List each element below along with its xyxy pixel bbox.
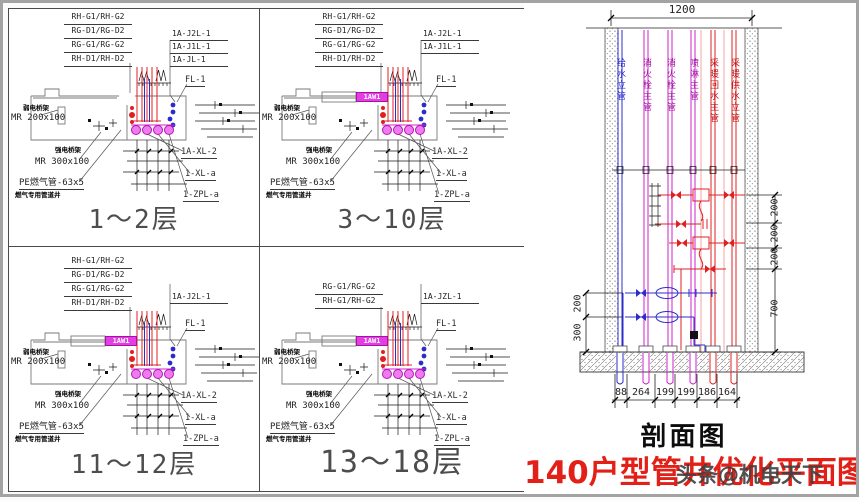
duct-tag: 1AW1 xyxy=(356,336,388,346)
floor-drain-label: FL-1 xyxy=(185,75,205,87)
dimension-label: 264 xyxy=(628,387,654,398)
duct-tag: 1AW1 xyxy=(356,92,388,102)
stack-label: RH-D1/RH-D2 xyxy=(315,53,383,67)
dimension-label: 200 xyxy=(770,242,781,272)
outlet-label: 1-XL-a xyxy=(185,169,216,181)
riser-label-stack: 1A-J2L-1 xyxy=(170,291,228,304)
floor-drain-label: FL-1 xyxy=(185,319,205,331)
stack-label: RH-G1/RH-G2 xyxy=(315,11,383,25)
riser-label-stack: 1A-J2L-1 1A-J1L-1 xyxy=(421,28,479,54)
stack-label: RG-D1/RG-D2 xyxy=(64,269,132,283)
riser-label-vertical: 消火栓主管 xyxy=(663,58,677,113)
dimension-label: 300 xyxy=(573,318,584,348)
dimension-label: 164 xyxy=(714,387,740,398)
outlet-label: 1-XL-a xyxy=(185,413,216,425)
riser-label: 1A-JL-1 xyxy=(170,54,228,67)
stack-label: RG-G1/RG-G2 xyxy=(315,39,383,53)
riser-label: 1A-J2L-1 xyxy=(421,28,479,41)
stack-label: RG-G1/RG-G2 xyxy=(315,281,383,295)
outlet-label: 1A-XL-2 xyxy=(181,391,217,403)
pipe-label-stack: RG-G1/RG-G2 RH-G1/RH-G2 xyxy=(315,281,383,309)
cable-tray-label: MR 200x100 xyxy=(11,113,65,123)
tray-note: 强电桥架 xyxy=(55,391,81,398)
gas-pipe-label: PE燃气管-63x5 xyxy=(19,422,84,434)
riser-label-vertical: 喷淋主管 xyxy=(686,58,700,102)
tray-note: 弱电桥架 xyxy=(23,105,49,112)
dimension-label: 700 xyxy=(770,294,781,324)
floor-range-title: 11～12层 xyxy=(9,444,259,481)
riser-label-vertical: 消火栓主管 xyxy=(639,58,653,113)
section-view-panel: 1200 给水立管 消火栓主管 消火栓主管 喷淋主管 采暖回水主管 采暖供水立管… xyxy=(524,0,859,497)
quadrant-floor-11-12: RH-G1/RH-G2 RG-D1/RG-D2 RG-G1/RG-G2 RH-D… xyxy=(9,247,259,491)
tray-note: 强电桥架 xyxy=(306,391,332,398)
stack-label: RH-D1/RH-D2 xyxy=(64,53,132,67)
tray-note: 弱电桥架 xyxy=(23,349,49,356)
riser-label-vertical: 给水立管 xyxy=(613,58,627,102)
floor-range-title: 3～10层 xyxy=(260,199,524,236)
riser-label-vertical: 采暖回水主管 xyxy=(706,58,720,124)
outlet-label: 1A-XL-2 xyxy=(432,391,468,403)
cable-tray-label: MR 300x100 xyxy=(286,401,340,411)
cable-tray-label: MR 200x100 xyxy=(11,357,65,367)
riser-label: 1A-J1L-1 xyxy=(170,41,228,54)
gas-pipe-label: PE燃气管-63x5 xyxy=(270,422,335,434)
outlet-label: 1-XL-a xyxy=(436,169,467,181)
stack-label: RG-G1/RG-G2 xyxy=(64,39,132,53)
quadrant-floor-13-18: RG-G1/RG-G2 RH-G1/RH-G2 1A-JZL-1 1AW1 FL… xyxy=(260,247,524,491)
width-dimension: 1200 xyxy=(654,4,710,15)
watermark: 头条@机电天下 xyxy=(676,459,823,489)
stack-label: RG-D1/RG-D2 xyxy=(315,25,383,39)
floor-range-title: 1～2层 xyxy=(9,199,259,236)
riser-label: 1A-J2L-1 xyxy=(170,291,228,304)
tray-note: 弱电桥架 xyxy=(274,105,300,112)
cable-tray-label: MR 200x100 xyxy=(262,113,316,123)
gas-shaft-note: 燃气专用管道井 xyxy=(15,192,61,199)
floor-range-title: 13～18层 xyxy=(260,437,524,481)
riser-label-stack: 1A-JZL-1 xyxy=(421,291,479,304)
floor-drain-label: FL-1 xyxy=(436,75,456,87)
duct-tag: 1AW1 xyxy=(105,336,137,346)
riser-label-vertical: 采暖供水立管 xyxy=(727,58,741,124)
gas-pipe-label: PE燃气管-63x5 xyxy=(270,178,335,190)
stack-label: RH-G1/RH-G2 xyxy=(315,295,383,309)
quadrant-floor-1-2: RH-G1/RH-G2 RG-D1/RG-D2 RG-G1/RG-G2 RH-D… xyxy=(9,9,259,246)
outlet-label: 1A-XL-2 xyxy=(181,147,217,159)
riser-label: 1A-J2L-1 xyxy=(170,28,228,41)
stack-label: RG-D1/RG-D2 xyxy=(64,25,132,39)
pipe-label-stack: RH-G1/RH-G2 RG-D1/RG-D2 RG-G1/RG-G2 RH-D… xyxy=(315,11,383,67)
floor-plan-grid: RH-G1/RH-G2 RG-D1/RG-D2 RG-G1/RG-G2 RH-D… xyxy=(8,8,525,492)
stack-label: RH-G1/RH-G2 xyxy=(64,255,132,269)
outlet-label: 1-XL-a xyxy=(436,413,467,425)
tray-note: 强电桥架 xyxy=(306,147,332,154)
cable-tray-label: MR 300x100 xyxy=(35,401,89,411)
riser-label: 1A-JZL-1 xyxy=(421,291,479,304)
riser-label-stack: 1A-J2L-1 1A-J1L-1 1A-JL-1 xyxy=(170,28,228,67)
pipe-label-stack: RH-G1/RH-G2 RG-D1/RG-D2 RG-G1/RG-G2 RH-D… xyxy=(64,255,132,311)
gas-shaft-note: 燃气专用管道井 xyxy=(266,192,312,199)
cable-tray-label: MR 200x100 xyxy=(262,357,316,367)
pipe-label-stack: RH-G1/RH-G2 RG-D1/RG-D2 RG-G1/RG-G2 RH-D… xyxy=(64,11,132,67)
dimension-label: 200 xyxy=(573,289,584,319)
floor-drain-label: FL-1 xyxy=(436,319,456,331)
tray-note: 弱电桥架 xyxy=(274,349,300,356)
stack-label: RH-G1/RH-G2 xyxy=(64,11,132,25)
gas-shaft-note: 燃气专用管道井 xyxy=(15,436,61,443)
outlet-label: 1A-XL-2 xyxy=(432,147,468,159)
stack-label: RH-D1/RH-D2 xyxy=(64,297,132,311)
cable-tray-label: MR 300x100 xyxy=(35,157,89,167)
quadrant-floor-3-10: RH-G1/RH-G2 RG-D1/RG-D2 RG-G1/RG-G2 RH-D… xyxy=(260,9,524,246)
cable-tray-label: MR 300x100 xyxy=(286,157,340,167)
stack-label: RG-G1/RG-G2 xyxy=(64,283,132,297)
tray-note: 强电桥架 xyxy=(55,147,81,154)
gas-pipe-label: PE燃气管-63x5 xyxy=(19,178,84,190)
riser-label: 1A-J1L-1 xyxy=(421,41,479,54)
drawing-sheet: { "quadrants": [ { "title": "1～2层", "sta… xyxy=(0,0,859,497)
